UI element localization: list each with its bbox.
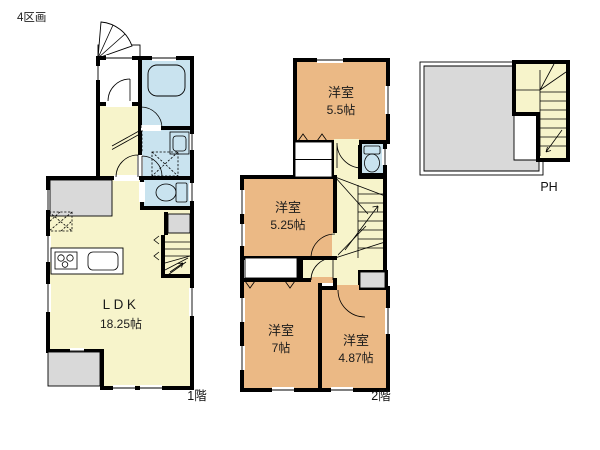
closet-gray-2f [360, 272, 385, 288]
ph-label: PH [540, 180, 557, 194]
entrance-hall [98, 58, 140, 104]
bath-door-opening [141, 125, 161, 131]
stair-wall-seg [164, 212, 168, 235]
terrace-1f [50, 180, 112, 216]
closet-1f [168, 214, 190, 233]
washroom [140, 128, 192, 178]
kitchen-counter [51, 248, 123, 274]
room-5-5-name: 洋室 [328, 85, 354, 100]
toilet-door-opening [139, 182, 145, 202]
toilet-1f [142, 178, 192, 208]
room-7-size: 7帖 [272, 340, 291, 355]
hall-door-opening [106, 101, 132, 107]
floor2-plan: 洋室 5.5帖 洋室 5.25帖 洋室 7帖 洋室 4.87帖 2階 [239, 57, 391, 403]
room-5-5 [295, 60, 388, 142]
floorplan-page: 4区画 [0, 0, 600, 450]
room-4-87-name: 洋室 [343, 333, 369, 348]
bathroom [140, 58, 192, 128]
stairs-1f [161, 235, 190, 278]
plan-title: 4区画 [17, 12, 46, 24]
ldk-name-label: LDK [103, 297, 140, 312]
hallway [98, 104, 140, 178]
room-7-name: 洋室 [268, 323, 294, 338]
ldk-size-label: 18.25帖 [100, 316, 142, 331]
room-5-25-name: 洋室 [275, 200, 301, 215]
floorplan-canvas: 4区画 [0, 0, 600, 450]
floor1-label: 1階 [187, 388, 207, 403]
floor2-label: 2階 [371, 388, 391, 403]
room-5-25-size: 5.25帖 [270, 217, 305, 232]
floor1-plan: LDK 18.25帖 1階 [45, 22, 207, 403]
room-5-5-size: 5.5帖 [327, 102, 356, 117]
porch-1f [48, 352, 100, 386]
ph-plan: PH [420, 62, 568, 194]
room-4-87-size: 4.87帖 [338, 350, 373, 365]
ldk-door-opening [114, 175, 139, 181]
